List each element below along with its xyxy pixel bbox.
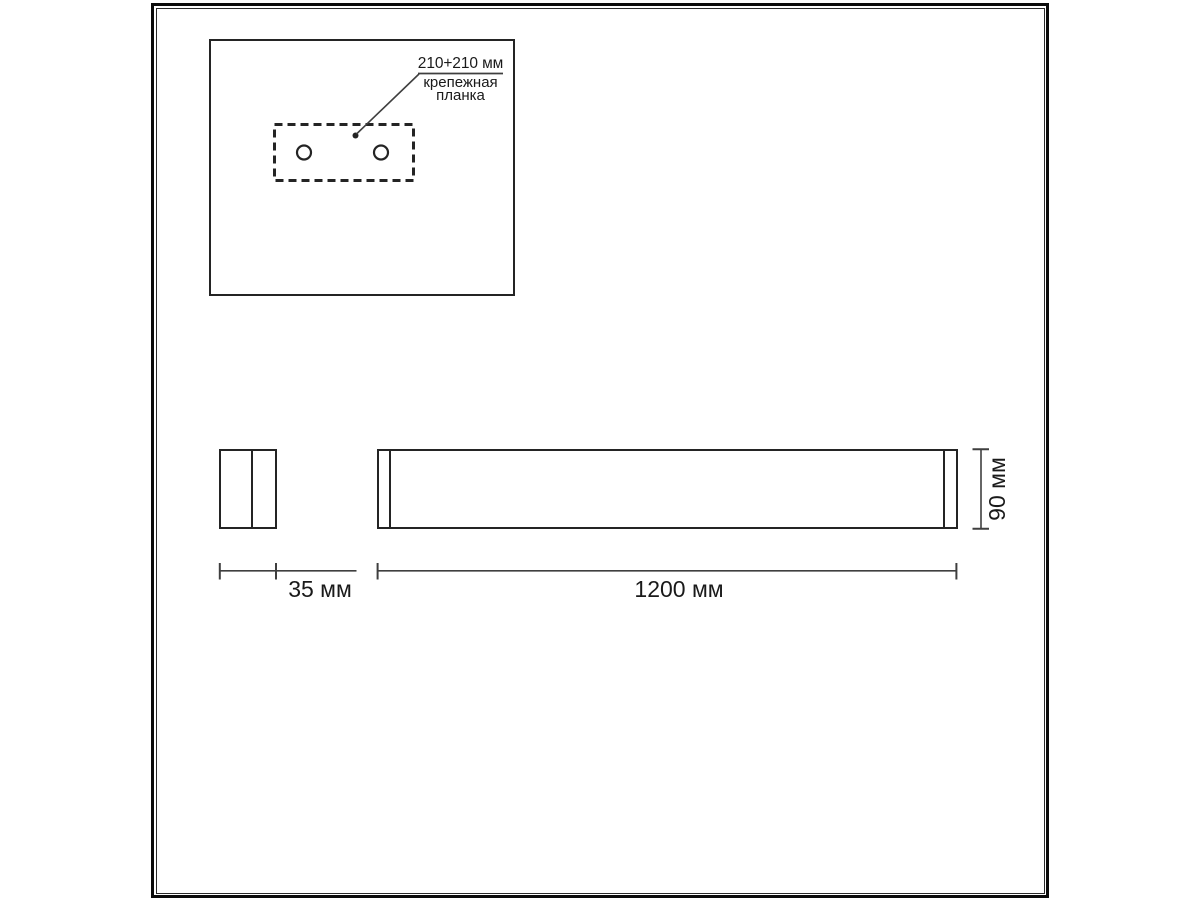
dimension-drawing: 210+210 мм крепежная планка 35 мм 1200 м… <box>0 0 1200 900</box>
length-dimension-label: 1200 мм <box>617 576 741 602</box>
mounting-plate-dashed-outline <box>275 125 414 181</box>
height-dimension-label: 90 мм <box>984 439 1010 539</box>
side-width-dimension-label: 35 мм <box>270 576 370 602</box>
annotation-label: крепежная планка <box>417 77 504 102</box>
mounting-hole-left <box>297 146 311 160</box>
drawing-lines-layer <box>0 0 1200 900</box>
mounting-hole-right <box>374 146 388 160</box>
annotation-dimension-text: 210+210 мм <box>417 55 504 73</box>
annotation-label-line2: планка <box>417 90 504 103</box>
